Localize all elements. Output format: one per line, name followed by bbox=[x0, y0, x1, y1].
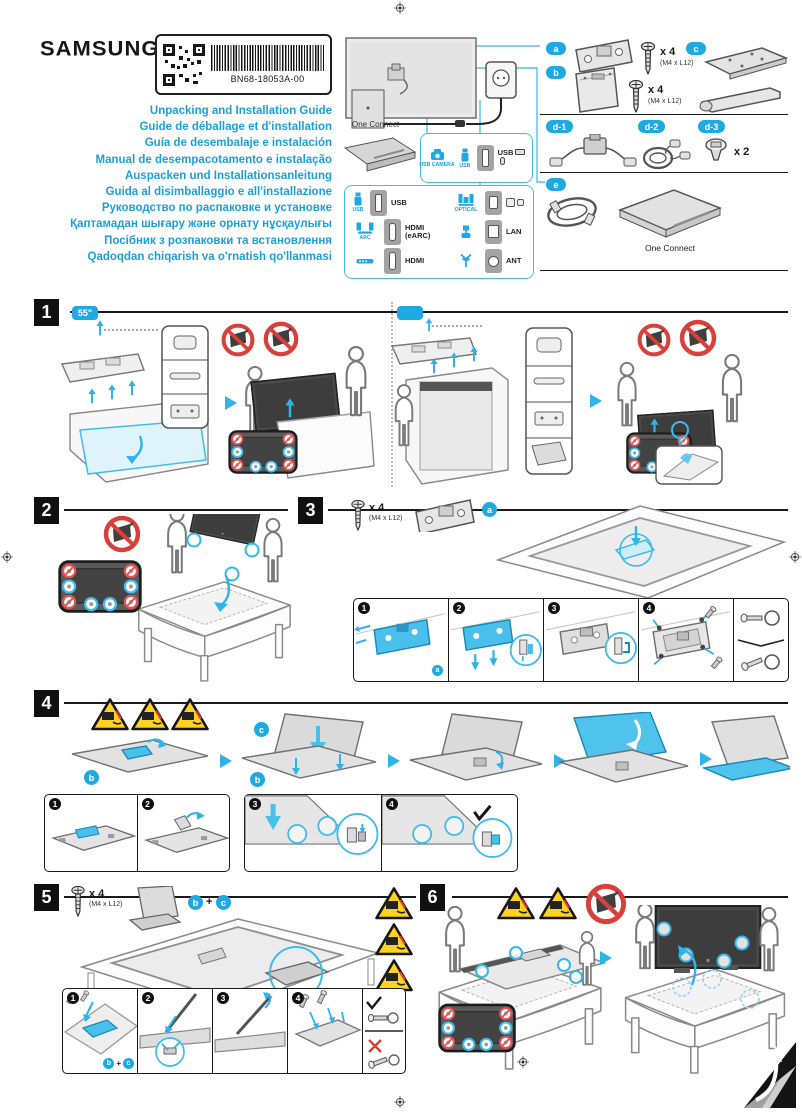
ant-port bbox=[485, 249, 502, 273]
section-3-steps: 1 a 2 bbox=[353, 598, 789, 682]
streaming-dongle-icon bbox=[461, 225, 471, 239]
section-5-steps: 1 b + c 2 bbox=[62, 988, 406, 1074]
registration-mark bbox=[789, 551, 801, 563]
step-number: 1 bbox=[49, 798, 61, 810]
prohibition-icon bbox=[640, 326, 669, 355]
cross-icon bbox=[369, 1040, 381, 1052]
s5-screw-spec: (M4 x L12) bbox=[89, 901, 122, 908]
usb-port bbox=[477, 145, 494, 171]
next-arrow-icon bbox=[388, 754, 400, 768]
screw-icon bbox=[640, 42, 656, 76]
part-c-ref: c bbox=[123, 1058, 134, 1069]
usb-port-label: USB bbox=[498, 149, 532, 167]
one-connect-port-panel: USB USB OPTICAL ARC HDMI (eARC) bbox=[344, 185, 534, 279]
usb-camera-label: USB CAMERA bbox=[419, 162, 454, 168]
hdmi-earc-port-label: HDMI (eARC) bbox=[405, 224, 443, 240]
speaker-system-icon bbox=[458, 193, 474, 206]
person-figure bbox=[636, 905, 654, 968]
title-line: Guía de desembalaje e instalación bbox=[30, 135, 332, 151]
product-label: BN68-18053A-00 bbox=[155, 34, 332, 95]
port-row-hdmi: HDMI bbox=[346, 247, 447, 276]
part-b-plate bbox=[570, 66, 622, 114]
one-connect-label: One Connect bbox=[352, 120, 399, 129]
person-figure bbox=[264, 519, 281, 581]
title-line: Unpacking and Installation Guide bbox=[30, 103, 332, 119]
audio-device-icons bbox=[506, 194, 526, 212]
antenna-icon bbox=[459, 254, 473, 268]
person-figure bbox=[168, 514, 186, 572]
hdmi-earc-port bbox=[384, 219, 401, 245]
manual-page: SAMSUNG BN68-18053A-00 Unpacking and Ins… bbox=[0, 0, 802, 1116]
page-turn-icon bbox=[742, 1036, 798, 1110]
person-figure bbox=[723, 355, 741, 421]
section-2-rule bbox=[64, 509, 288, 511]
section-4-stand-assembly bbox=[60, 712, 790, 792]
optical-port bbox=[485, 191, 502, 215]
registration-mark bbox=[1, 551, 13, 563]
screw-a-spec: (M4 x L12) bbox=[660, 60, 693, 67]
keyboard-icon bbox=[515, 149, 525, 155]
part-d2-badge: d-2 bbox=[638, 120, 665, 133]
screw-b-spec: (M4 x L12) bbox=[648, 98, 681, 105]
next-arrow-icon bbox=[590, 394, 602, 408]
step-panel: 1 a bbox=[354, 599, 449, 681]
part-a-bracket bbox=[412, 498, 476, 532]
screw-b-qty: x 4 bbox=[648, 84, 663, 96]
checkmark-icon bbox=[474, 806, 490, 819]
usb-stick-icon bbox=[461, 148, 469, 162]
section-3-tv-on-table bbox=[488, 498, 790, 600]
section-4-steps-b: 3 4 bbox=[244, 794, 518, 872]
port-row-ant: ANT bbox=[447, 247, 532, 276]
grip-point-diagram bbox=[440, 1005, 515, 1051]
screw-icon bbox=[70, 886, 86, 918]
soundbar-icon bbox=[356, 258, 374, 265]
title-line: Guide de déballage et d'installation bbox=[30, 119, 332, 135]
title-list: Unpacking and Installation Guide Guide d… bbox=[30, 103, 332, 265]
lan-port bbox=[485, 220, 502, 244]
screw-check-inset bbox=[363, 989, 405, 1073]
part-d2-cable bbox=[636, 136, 692, 172]
lift-arrow-icon bbox=[96, 320, 103, 335]
title-line: Қаптамадан шығару және орнату нұсқаулығы bbox=[30, 216, 332, 232]
one-connect-caption: One Connect bbox=[612, 243, 728, 253]
step-number: 3 bbox=[548, 602, 560, 614]
hdmi-port bbox=[384, 248, 401, 274]
screw-a-qty: x 4 bbox=[660, 46, 675, 58]
barcode bbox=[211, 45, 324, 71]
section-1-rule bbox=[70, 311, 788, 313]
part-c-neck bbox=[692, 84, 788, 114]
parts-divider bbox=[540, 270, 788, 271]
port-row-lan: LAN bbox=[447, 217, 532, 246]
step-panel: 1 b + c bbox=[63, 989, 138, 1073]
title-line: Manual de desempacotamento e instalação bbox=[30, 152, 332, 168]
part-b-badge: b bbox=[546, 66, 566, 79]
step-panel: 1 bbox=[45, 795, 138, 871]
part-d1-adapter bbox=[544, 134, 640, 172]
next-arrow-icon bbox=[600, 951, 612, 965]
table bbox=[139, 582, 290, 681]
usb-stick-icon bbox=[354, 192, 362, 206]
step-panel: 4 bbox=[382, 795, 518, 871]
checkmark-icon bbox=[367, 997, 381, 1008]
port-row-usb: USB USB bbox=[346, 188, 447, 217]
title-line: Qadoqdan chiqarish va o'rnatish qo'llanm… bbox=[30, 249, 332, 265]
d3-qty: x 2 bbox=[734, 146, 749, 158]
person-figure bbox=[618, 363, 635, 425]
part-b-ref: b bbox=[103, 1058, 114, 1069]
prohibition-icon bbox=[266, 324, 296, 354]
step-number: 4 bbox=[292, 992, 304, 1004]
section-5-number: 5 bbox=[34, 884, 59, 911]
warning-triangle-icon bbox=[374, 922, 414, 957]
part-e-cable bbox=[542, 192, 604, 234]
next-arrow-icon bbox=[700, 752, 712, 766]
qr-code bbox=[163, 44, 205, 86]
step-number: 4 bbox=[386, 798, 398, 810]
title-line: Руководство по распаковке и установке bbox=[30, 200, 332, 216]
usb-label: USB bbox=[459, 163, 470, 169]
part-c-ref: c bbox=[254, 722, 269, 737]
screw-icon bbox=[628, 80, 644, 114]
step-panel: 4 bbox=[288, 989, 363, 1073]
part-d1-badge: d-1 bbox=[546, 120, 573, 133]
step-number: 1 bbox=[67, 992, 79, 1004]
step-number: 4 bbox=[643, 602, 655, 614]
step-panel: 3 bbox=[544, 599, 639, 681]
parts-divider bbox=[540, 172, 788, 173]
port-row-hdmi-earc: ARC HDMI (eARC) bbox=[346, 217, 447, 246]
section-2-illustration bbox=[36, 514, 292, 684]
step-number: 1 bbox=[358, 602, 370, 614]
step-number: 2 bbox=[142, 798, 154, 810]
person-figure bbox=[760, 908, 777, 970]
step-number: 2 bbox=[453, 602, 465, 614]
step-number: 2 bbox=[142, 992, 154, 1004]
section-4-number: 4 bbox=[34, 690, 59, 717]
registration-mark bbox=[394, 1096, 406, 1108]
part-b-ref: b bbox=[188, 895, 203, 910]
next-arrow-icon bbox=[225, 396, 237, 410]
prohibition-icon bbox=[682, 322, 714, 354]
usb-camera-icon bbox=[430, 148, 445, 161]
usb-port-label: USB bbox=[391, 199, 407, 207]
mouse-icon bbox=[500, 157, 505, 165]
step-number: 3 bbox=[249, 798, 261, 810]
step-panel: 4 bbox=[639, 599, 734, 681]
part-c-base bbox=[700, 44, 790, 82]
part-e-badge: e bbox=[546, 178, 566, 191]
part-number: BN68-18053A-00 bbox=[211, 74, 324, 84]
section-4-steps-a: 1 2 bbox=[44, 794, 230, 872]
section-1-illustration bbox=[40, 318, 788, 488]
parts-divider bbox=[540, 114, 788, 115]
prohibition-icon bbox=[106, 518, 138, 550]
part-a-ref: a bbox=[432, 665, 443, 676]
s3-screw-qty: x 4 bbox=[369, 502, 384, 514]
title-line: Guida al disimballaggio e all'installazi… bbox=[30, 184, 332, 200]
part-d3-badge: d-3 bbox=[698, 120, 725, 133]
part-b-ref: b bbox=[84, 770, 99, 785]
part-d3-holder bbox=[704, 138, 728, 164]
usb-port bbox=[370, 190, 387, 216]
hdmi-port-label: HDMI bbox=[405, 257, 424, 265]
s3-screw-spec: (M4 x L12) bbox=[369, 515, 402, 522]
plus-sign: + bbox=[206, 896, 212, 908]
step-panel: 2 bbox=[138, 795, 230, 871]
step-panel: 2 bbox=[138, 989, 213, 1073]
grip-point-diagram bbox=[230, 431, 297, 472]
next-arrow-icon bbox=[220, 754, 232, 768]
port-row-optical: OPTICAL bbox=[447, 188, 532, 217]
ant-port-label: ANT bbox=[506, 257, 521, 265]
part-c-ref: c bbox=[216, 895, 231, 910]
step-number: 3 bbox=[217, 992, 229, 1004]
section-5-rule bbox=[64, 896, 416, 898]
section-6-illustration bbox=[424, 905, 790, 1077]
soundbar-speakers-icon bbox=[356, 222, 374, 234]
step-panel: 3 bbox=[213, 989, 288, 1073]
step-panel: 2 bbox=[449, 599, 544, 681]
prohibition-icon bbox=[224, 326, 253, 355]
section-3-number: 3 bbox=[298, 497, 323, 524]
lan-port-label: LAN bbox=[506, 228, 521, 236]
part-a-badge: a bbox=[546, 42, 566, 55]
usb-camera-panel: USB CAMERA USB USB bbox=[420, 133, 533, 183]
registration-mark bbox=[394, 2, 406, 14]
title-line: Посібник з розпаковки та встановлення bbox=[30, 233, 332, 249]
screw-icon bbox=[350, 500, 366, 532]
part-e-one-connect bbox=[612, 182, 728, 240]
grip-point-diagram bbox=[60, 562, 141, 612]
screw-depth-inset bbox=[734, 599, 788, 681]
samsung-logo: SAMSUNG bbox=[40, 37, 159, 62]
part-b-ref: b bbox=[250, 772, 265, 787]
title-line: Auspacken und Installationsanleitung bbox=[30, 168, 332, 184]
s5-screw-qty: x 4 bbox=[89, 888, 104, 900]
person-figure bbox=[347, 347, 366, 415]
person-figure bbox=[446, 907, 464, 972]
step-panel: 3 bbox=[245, 795, 382, 871]
warning-triangle-icon bbox=[374, 886, 414, 921]
